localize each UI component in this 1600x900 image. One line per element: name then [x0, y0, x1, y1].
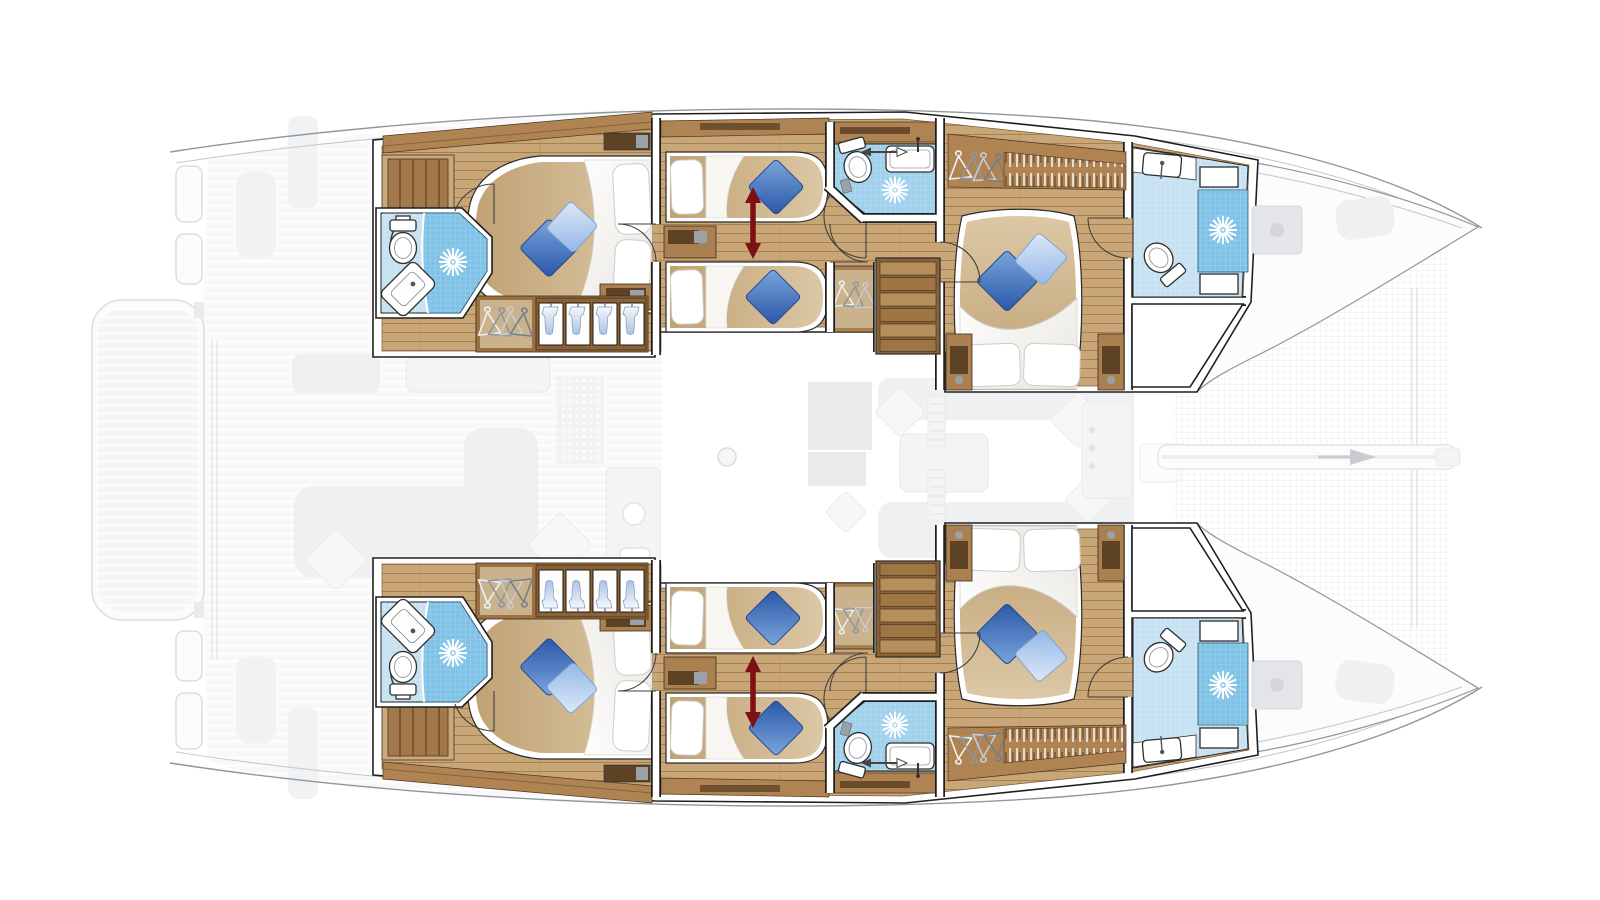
cushion-ghost [825, 491, 867, 533]
anchor-roller-ghost [1436, 448, 1460, 466]
chart-table-ghost [1082, 402, 1132, 498]
cockpit-bench-ghost [292, 354, 380, 394]
windlass-ghost [1270, 223, 1284, 237]
deck-plan-svg [0, 0, 1600, 900]
bowsprit [1158, 445, 1460, 469]
saloon-seat-ghost [808, 452, 866, 486]
windlass-ghost [1270, 678, 1284, 692]
cockpit-sofa-ghost [464, 428, 538, 578]
catamaran-deck-plan [0, 0, 1600, 900]
swim-platform-ghost [92, 300, 204, 620]
stove-ghost [623, 503, 645, 525]
cockpit-table-ghost [406, 356, 550, 392]
saloon-table-ghost [808, 382, 872, 450]
mast-foot-icon [718, 448, 736, 466]
